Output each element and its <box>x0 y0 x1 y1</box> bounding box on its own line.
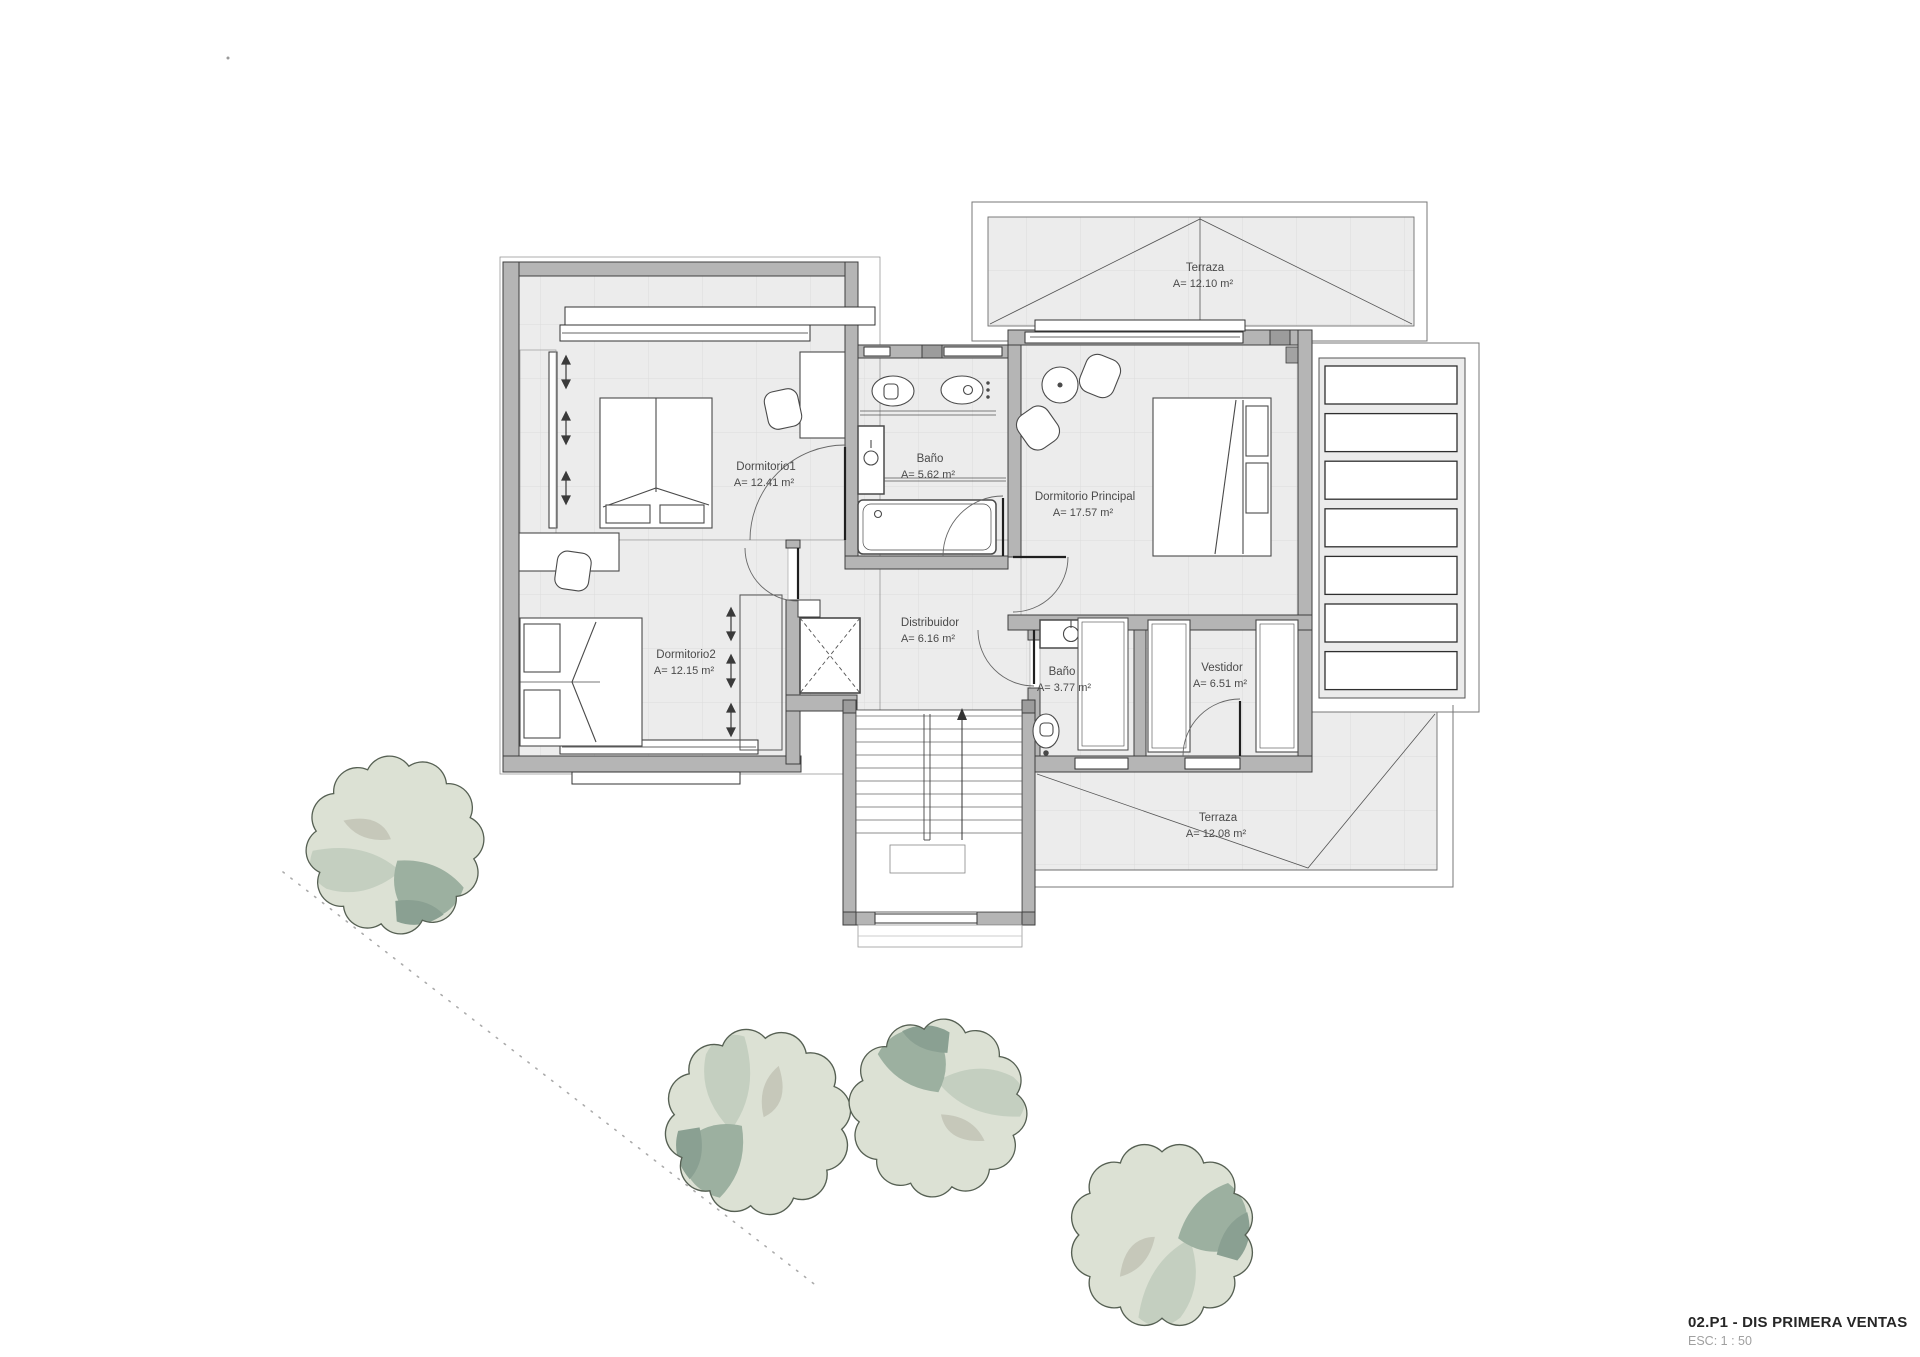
label-vestidor-area: A= 6.51 m² <box>1193 678 1247 690</box>
louver-slat <box>1325 604 1457 642</box>
window-principal-top <box>1025 332 1243 343</box>
tree-icon <box>291 741 500 950</box>
desk-dormitorio1 <box>800 352 845 438</box>
window-terraza-door <box>1185 758 1240 769</box>
label-distribuidor-area: A= 6.16 m² <box>901 633 955 645</box>
toilet-icon <box>872 376 914 406</box>
reference-dot <box>227 57 230 60</box>
tree-icon <box>1034 1107 1290 1357</box>
louver-slat <box>1325 366 1457 404</box>
wardrobe-vestidor <box>1256 620 1298 752</box>
bathtub-icon <box>858 500 996 554</box>
floor-plan-drawing: Dormitorio1 A= 12.41 m² Dormitorio2 A= 1… <box>0 0 1920 1357</box>
louver-slat <box>1325 509 1457 547</box>
label-terraza-norte: Terraza <box>1186 262 1225 274</box>
label-dormitorio1-area: A= 12.41 m² <box>734 477 795 489</box>
louver-panel <box>1286 343 1479 712</box>
label-terraza-sur: Terraza <box>1199 812 1238 824</box>
window-banio-superior <box>864 347 890 356</box>
window-banio-superior <box>944 347 1002 356</box>
bed-dormitorio1 <box>600 398 712 528</box>
label-dormitorio1: Dormitorio1 <box>736 461 795 473</box>
label-terraza-norte-area: A= 12.10 m² <box>1173 278 1234 290</box>
label-banio-inferior-area: A= 3.77 m² <box>1037 682 1091 694</box>
sheet-scale: ESC: 1 : 50 <box>1688 1334 1907 1348</box>
window-banio-inferior <box>1075 758 1128 769</box>
window-bay-principal <box>1035 320 1245 331</box>
label-dormitorio2-area: A= 12.15 m² <box>654 665 715 677</box>
window-bay-dormitorio1 <box>565 307 875 325</box>
floor-plan-sheet: Dormitorio1 A= 12.41 m² Dormitorio2 A= 1… <box>0 0 1920 1357</box>
label-distribuidor: Distribuidor <box>901 617 959 629</box>
louver-slat <box>1325 556 1457 594</box>
title-block: 02.P1 - DIS PRIMERA VENTAS ESC: 1 : 50 <box>1688 1314 1907 1348</box>
entry-door-opening <box>875 914 977 923</box>
label-banio-superior: Baño <box>917 453 944 465</box>
label-dormitorio2: Dormitorio2 <box>656 649 715 661</box>
washbasin-icon <box>858 426 884 494</box>
wardrobe-vestidor <box>1148 620 1190 752</box>
louver-slat <box>1325 461 1457 499</box>
tree-icon <box>656 1020 861 1225</box>
sheet-title: 02.P1 - DIS PRIMERA VENTAS <box>1688 1314 1907 1331</box>
bed-principal <box>1153 398 1271 556</box>
label-banio-inferior: Baño <box>1049 666 1076 678</box>
label-dormitorio-principal: Dormitorio Principal <box>1035 491 1135 503</box>
louver-slat <box>1325 652 1457 690</box>
chair-icon <box>554 550 593 592</box>
louver-slat <box>1325 414 1457 452</box>
label-banio-superior-area: A= 5.62 m² <box>901 469 955 481</box>
window-sill-dormitorio2 <box>572 772 740 784</box>
label-terraza-sur-area: A= 12.08 m² <box>1186 828 1247 840</box>
label-dormitorio-principal-area: A= 17.57 m² <box>1053 507 1114 519</box>
label-vestidor: Vestidor <box>1201 662 1243 674</box>
bed-dormitorio2 <box>520 618 642 746</box>
staircase <box>856 708 1022 947</box>
tree-icon <box>823 993 1054 1224</box>
